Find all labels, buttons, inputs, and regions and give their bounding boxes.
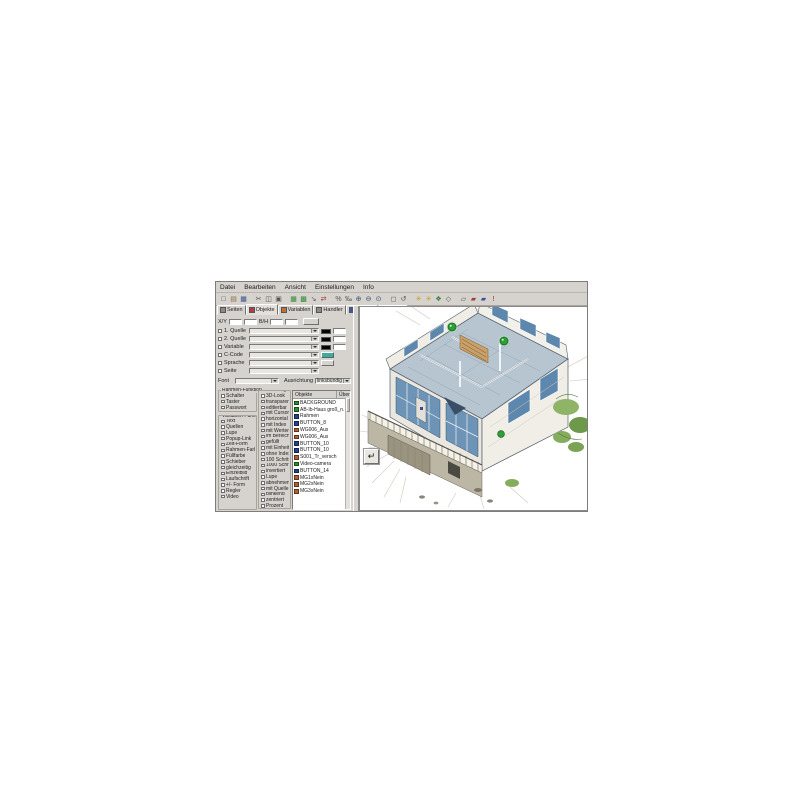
dropdown-button[interactable] (311, 353, 318, 357)
color-swatch[interactable] (321, 329, 331, 334)
tab[interactable]: Variablen (278, 305, 314, 315)
properties-pane: Seiten Objekte Variablen Handler (216, 306, 353, 511)
tab[interactable]: Seiten (217, 305, 246, 315)
value-field[interactable] (333, 328, 346, 334)
font-row: Font Ausrichtung linksbündig (218, 375, 351, 387)
checkbox[interactable] (261, 464, 265, 468)
object-row[interactable]: BUTTON_8 (293, 420, 350, 427)
toolbar-icon[interactable]: ⊖ (364, 295, 373, 304)
object-type-icon (294, 448, 299, 453)
test-button[interactable] (321, 352, 334, 358)
object-type-icon (294, 489, 299, 494)
object-type-icon (294, 455, 299, 460)
toolbar-icon[interactable]: ⇄ (319, 295, 328, 304)
toolbar-icon[interactable]: ✳ (424, 295, 433, 304)
object-list-column: Objekte Über BACKGROUND (292, 388, 351, 510)
toolbar-separator (284, 295, 288, 304)
checkbox[interactable] (261, 435, 265, 439)
menu-item[interactable]: Ansicht (285, 284, 306, 291)
house-illustration (360, 307, 587, 511)
option-label: Video (226, 494, 239, 500)
toolbar-icon[interactable]: ‰ (344, 295, 353, 304)
dropdown-button[interactable] (311, 337, 318, 341)
object-label: WG006_Aus (300, 434, 328, 440)
tab-icon (249, 307, 255, 313)
dropdown-button[interactable] (343, 379, 350, 383)
checkbox[interactable] (261, 429, 265, 433)
toolbar-separator (329, 295, 333, 304)
object-label: S001_Tr_versch (300, 454, 337, 460)
object-row[interactable]: WG006_Aus (293, 433, 350, 440)
scrollbar-thumb[interactable] (346, 398, 350, 412)
toolbar-icon[interactable]: ▱ (459, 295, 468, 304)
toolbar-icon[interactable]: □ (219, 295, 228, 304)
property-label: 1. Quelle (224, 328, 247, 334)
toolbar-icon[interactable]: ▦ (239, 295, 248, 304)
property-row: Seite (218, 367, 351, 375)
toolbar-icon[interactable]: ⊙ (374, 295, 383, 304)
chevron-down-icon (313, 362, 317, 364)
layer-column-header[interactable]: Über (337, 391, 350, 398)
toolbar-icon[interactable]: ◻ (389, 295, 398, 304)
y-input[interactable] (244, 319, 257, 325)
toolbar-separator (454, 295, 458, 304)
object-type-icon (294, 414, 299, 419)
function-column: Rahmen-Funktion Schalter (218, 388, 257, 510)
option-groups: Rahmen-Funktion Schalter (218, 388, 351, 510)
object-label: BUTTON_8 (300, 420, 326, 426)
checkbox[interactable] (261, 394, 265, 398)
dropdown-button[interactable] (311, 329, 318, 333)
toolbar-icon[interactable]: ! (489, 295, 498, 304)
sensor-marker[interactable] (498, 431, 505, 438)
property-checkbox[interactable] (218, 369, 222, 373)
menu-item[interactable]: Info (363, 284, 374, 291)
checkbox[interactable] (221, 406, 225, 410)
panel-body: X/Y B/H 1. Quelle (216, 315, 353, 511)
checkbox[interactable] (261, 458, 265, 462)
checkbox[interactable] (261, 406, 265, 410)
checkbox[interactable] (261, 452, 265, 456)
property-extras (321, 360, 351, 366)
checkbox[interactable] (261, 441, 265, 445)
object-type-icon (294, 435, 299, 440)
object-row[interactable]: BUTTON_10 (293, 440, 350, 447)
objects-column-header[interactable]: Objekte (293, 391, 337, 398)
font-dropdown[interactable] (235, 378, 279, 384)
toolbar-icon[interactable]: ✳ (414, 295, 423, 304)
chevron-down-icon (313, 338, 317, 340)
toolbar-icon[interactable]: ↺ (399, 295, 408, 304)
object-row[interactable]: WG006_Aus (293, 427, 350, 434)
object-row[interactable]: MG3xNein (293, 488, 350, 495)
property-dropdown[interactable] (249, 360, 319, 366)
property-rows: 1. Quelle (218, 327, 351, 375)
object-type-icon (294, 482, 299, 487)
toolbar-icon[interactable]: ▰ (479, 295, 488, 304)
main-content: Seiten Objekte Variablen Handler (216, 306, 587, 511)
checkbox[interactable] (261, 493, 265, 497)
tab-label: Seiten (227, 307, 243, 313)
object-row[interactable]: MG2xNein (293, 481, 350, 488)
options-button[interactable] (321, 360, 334, 366)
checkbox[interactable] (221, 400, 225, 404)
dropdown-button[interactable] (311, 369, 318, 373)
checkbox[interactable] (221, 443, 225, 447)
xy-label: X/Y (218, 319, 227, 325)
apply-button[interactable] (303, 318, 319, 325)
object-type-icon (294, 469, 299, 474)
alignment-value: linksbündig (316, 378, 342, 384)
property-dropdown[interactable] (249, 352, 319, 358)
checkbox[interactable] (221, 489, 225, 493)
property-extras (321, 328, 351, 334)
checkbox[interactable] (261, 475, 265, 479)
toolbar-icon[interactable]: ⊕ (354, 295, 363, 304)
tab-icon (316, 307, 322, 313)
object-row[interactable]: Rahmen (293, 413, 350, 420)
object-type-icon (294, 462, 299, 467)
return-arrow-icon: ↵ (368, 451, 376, 462)
option-checkbox-row[interactable]: Prozent (261, 503, 289, 509)
tab-strip: Seiten Objekte Variablen Handler (216, 306, 353, 315)
group-title: Rahmen-Funktion (221, 388, 263, 393)
object-row[interactable]: BACKGROUND (293, 400, 350, 407)
object-label: AB-Ib-Haus groß_n. (300, 407, 344, 413)
property-extras (321, 352, 351, 358)
alignment-dropdown[interactable]: linksbündig (315, 378, 351, 384)
chevron-down-icon (273, 380, 277, 382)
checkbox[interactable] (221, 431, 225, 435)
x-input[interactable] (229, 319, 242, 325)
checkbox[interactable] (261, 481, 265, 485)
property-dropdown[interactable] (249, 344, 319, 350)
chevron-down-icon (313, 354, 317, 356)
checkbox[interactable] (221, 478, 225, 482)
tab-icon (281, 307, 287, 313)
value-field[interactable] (333, 336, 346, 342)
property-checkbox[interactable] (218, 337, 222, 341)
object-row[interactable]: S001_Tr_versch (293, 454, 350, 461)
object-label: WG006_Aus (300, 427, 328, 433)
object-list-scrollbar[interactable] (345, 398, 350, 509)
sensor-marker[interactable] (499, 336, 510, 347)
dropdown-button[interactable] (311, 361, 318, 365)
option-checkbox-row[interactable]: Video (221, 494, 255, 500)
checkbox[interactable] (221, 454, 225, 458)
checkbox[interactable] (261, 504, 265, 508)
tab-icon (220, 307, 226, 313)
menu-item[interactable]: Datei (220, 284, 235, 291)
object-label: Rahmen (300, 413, 319, 419)
tab[interactable]: Objekte (246, 304, 278, 315)
object-type-icon (294, 421, 299, 426)
property-checkbox[interactable] (218, 329, 222, 333)
sensor-marker[interactable] (447, 322, 458, 333)
property-dropdown[interactable] (249, 336, 319, 342)
chevron-down-icon (313, 330, 317, 332)
color-swatch[interactable] (321, 337, 331, 342)
object-row[interactable]: BUTTON_10 (293, 447, 350, 454)
object-type-icon (294, 401, 299, 406)
property-checkbox[interactable] (218, 345, 222, 349)
group-title: Gestaltung (261, 390, 287, 393)
toolbar-icon[interactable]: % (334, 295, 343, 304)
checkbox[interactable] (221, 472, 225, 476)
bh-label: B/H (259, 319, 268, 325)
group-title: Variablen-Funk. (221, 415, 257, 418)
menu-bar: Datei Bearbeiten Ansicht Einstellungen I… (216, 282, 587, 293)
object-label: MG3xNein (300, 488, 324, 494)
width-input[interactable] (270, 319, 283, 325)
coordinates-row: X/Y B/H (218, 316, 351, 327)
option-checkbox-row[interactable]: Passwort (221, 405, 255, 411)
toolbar-icon[interactable]: ▤ (229, 295, 238, 304)
checkbox[interactable] (261, 400, 265, 404)
toolbar-separator (409, 295, 413, 304)
variablen-funktion-group: Variablen-Funk. Text (218, 415, 257, 510)
object-row[interactable]: BUTTON_14 (293, 467, 350, 474)
gestaltung-column: Gestaltung 3D-Look (258, 388, 291, 510)
toolbar-icon[interactable]: ◇ (444, 295, 453, 304)
tab-label: Objekte (256, 307, 275, 313)
checkbox[interactable] (221, 437, 225, 441)
dropdown-button[interactable] (311, 345, 318, 349)
checkbox[interactable] (221, 394, 225, 398)
property-row: 1. Quelle (218, 327, 351, 335)
object-list: Objekte Über BACKGROUND (292, 390, 351, 510)
object-label: BUTTON_14 (300, 468, 329, 474)
property-extras (321, 344, 351, 350)
checkbox[interactable] (221, 460, 225, 464)
toolbar-icon[interactable]: ❖ (434, 295, 443, 304)
object-type-icon (294, 475, 299, 480)
checkbox[interactable] (221, 449, 225, 453)
gestaltung-group: Gestaltung 3D-Look (258, 390, 291, 509)
checkbox[interactable] (261, 470, 265, 474)
property-row: Variable (218, 343, 351, 351)
object-type-icon (294, 407, 299, 412)
return-button[interactable]: ↵ (364, 449, 379, 464)
object-row[interactable]: MG1xNein (293, 474, 350, 481)
toolbar-icon[interactable]: ▦ (289, 295, 298, 304)
font-label: Font (218, 378, 233, 384)
object-label: MG1xNein (300, 475, 324, 481)
object-label: MG2xNein (300, 481, 324, 487)
option-label: Prozent (266, 503, 283, 509)
object-label: BUTTON_10 (300, 441, 329, 447)
toolbar-icon[interactable]: ▣ (274, 295, 283, 304)
property-row: C-Code (218, 351, 351, 359)
toolbar-icon[interactable]: ▩ (299, 295, 308, 304)
checkbox[interactable] (221, 495, 225, 499)
option-label: Passwort (226, 405, 247, 411)
checkbox[interactable] (261, 412, 265, 416)
toolbar-separator (249, 295, 253, 304)
property-label: Seite (224, 368, 247, 374)
checkbox[interactable] (261, 423, 265, 427)
tab-label: Handler (323, 307, 342, 313)
menu-item[interactable]: Bearbeiten (244, 284, 275, 291)
property-extras (321, 336, 351, 342)
checkbox[interactable] (221, 420, 225, 424)
app-window: Datei Bearbeiten Ansicht Einstellungen I… (215, 281, 588, 512)
screenshot-page: { "window": {"bg": "#d6d3ce", "accent_gr… (0, 0, 800, 800)
dropdown-button[interactable] (271, 379, 278, 383)
visualization-canvas[interactable]: ↵ (359, 306, 587, 511)
chevron-down-icon (345, 380, 349, 382)
object-label: BUTTON_10 (300, 447, 329, 453)
toolbar-icon[interactable]: ✂ (254, 295, 263, 304)
tab-label: Variablen (288, 307, 311, 313)
property-label: 2. Quelle (224, 336, 247, 342)
object-rows: BACKGROUND AB-Ib-Haus groß_n. (293, 399, 350, 509)
tab[interactable]: Handler (313, 305, 345, 315)
checkbox[interactable] (261, 446, 265, 450)
property-label: C-Code (224, 352, 247, 358)
menu-item[interactable]: Einstellungen (315, 284, 354, 291)
property-row: 2. Quelle (218, 335, 351, 343)
property-checkbox[interactable] (218, 361, 222, 365)
chevron-down-icon (313, 346, 317, 348)
object-type-icon (294, 441, 299, 446)
object-row[interactable]: AB-Ib-Haus groß_n. (293, 406, 350, 413)
object-label: Video-camera (300, 461, 331, 467)
checkbox[interactable] (261, 417, 265, 421)
color-swatch[interactable] (321, 345, 331, 350)
toolbar-icon[interactable]: ▰ (469, 295, 478, 304)
height-input[interactable] (285, 319, 298, 325)
object-row[interactable]: Video-camera (293, 461, 350, 468)
property-row: Sprache (218, 359, 351, 367)
object-list-header: Objekte Über (293, 391, 350, 399)
rahmen-funktion-group: Rahmen-Funktion Schalter (218, 390, 257, 412)
checkbox[interactable] (221, 483, 225, 487)
toolbar-icon[interactable]: ↘ (309, 295, 318, 304)
property-label: Sprache (224, 360, 247, 366)
object-type-icon (294, 428, 299, 433)
property-dropdown[interactable] (249, 368, 319, 374)
property-label: Variable (224, 344, 247, 350)
property-dropdown[interactable] (249, 328, 319, 334)
checkbox[interactable] (261, 498, 265, 502)
checkbox[interactable] (261, 487, 265, 491)
alignment-label: Ausrichtung (284, 378, 313, 384)
value-field[interactable] (333, 344, 346, 350)
checkbox[interactable] (221, 425, 225, 429)
toolbar-separator (384, 295, 388, 304)
property-checkbox[interactable] (218, 353, 222, 357)
chevron-down-icon (313, 370, 317, 372)
toolbar-icon[interactable]: ◫ (264, 295, 273, 304)
checkbox[interactable] (221, 466, 225, 470)
object-label: BACKGROUND (300, 400, 336, 406)
